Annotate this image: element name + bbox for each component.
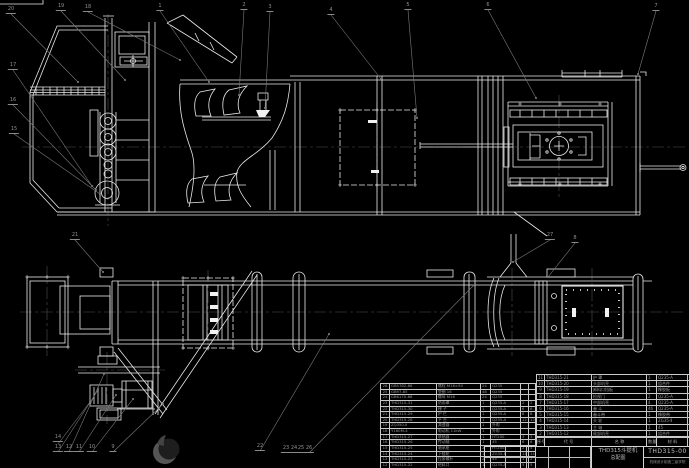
table-row: 19ZQ350-Ⅱ减速器1外购 bbox=[380, 422, 536, 428]
table-cell: 减速器 bbox=[437, 423, 481, 428]
table-cell: 13 bbox=[380, 457, 390, 462]
balloon-label: 15 bbox=[9, 127, 19, 134]
table-cell: 4 bbox=[536, 418, 545, 423]
table-row: 7THD315-17中部机壳4Q235-A1872 bbox=[536, 399, 689, 405]
table-cell: 9 bbox=[536, 387, 545, 392]
table-cell: 1 bbox=[481, 401, 491, 406]
table-cell: 3 bbox=[536, 425, 545, 430]
table-row: 20THD315-28平 台1Q235-A1212 bbox=[380, 417, 536, 423]
table-cell: 垫圈 16 bbox=[437, 390, 481, 395]
table-cell: 8 bbox=[521, 412, 529, 417]
table-cell: 1 bbox=[647, 375, 657, 380]
table-cell: THD315-13 bbox=[545, 425, 592, 430]
cad-viewport: 26GB5782-86螺栓 M16×5024Q23525GB97-85垫圈 16… bbox=[0, 0, 689, 468]
balloon-label: 7 bbox=[652, 4, 659, 11]
take-up-assembly bbox=[420, 125, 603, 167]
bom-table-right: 11THD315-21护 罩1Q235-A4410THD315-20头部机壳1组… bbox=[536, 374, 689, 437]
table-cell: THD315-14 bbox=[545, 418, 592, 423]
table-cell: 19 bbox=[380, 423, 390, 428]
table-cell: 45 bbox=[657, 425, 688, 430]
table-cell: THD315-22 bbox=[390, 463, 437, 468]
head-curve bbox=[180, 80, 300, 212]
table-cell: 8 bbox=[529, 412, 536, 417]
table-cell: 橡胶板 bbox=[657, 387, 688, 392]
balloon-label: 21 bbox=[70, 233, 80, 240]
table-cell: THD315-23 bbox=[390, 457, 437, 462]
balloon-label: 18 bbox=[83, 5, 93, 12]
table-cell: 2 bbox=[521, 401, 529, 406]
table-cell: Q235-A bbox=[657, 406, 688, 411]
table-row: 21THD315-29护 栏1Q235-A88 bbox=[380, 411, 536, 417]
balloon-label: 9 bbox=[109, 445, 116, 452]
table-cell: 12 bbox=[521, 418, 529, 423]
table-cell: 1 bbox=[647, 418, 657, 423]
mid-casing bbox=[57, 70, 646, 215]
table-cell: 48 bbox=[481, 390, 491, 395]
balloon-label: 11 bbox=[74, 445, 84, 452]
table-cell: THD315-12 bbox=[545, 431, 592, 436]
table-cell: 6 bbox=[536, 406, 545, 411]
table-cell: 给料口 bbox=[437, 463, 481, 468]
table-cell: 1 bbox=[481, 429, 491, 434]
balloon-label: 27 bbox=[545, 233, 555, 240]
table-row: 23THD315-31防雨罩1Q235-A22 bbox=[380, 400, 536, 406]
table-cell: 17 bbox=[380, 435, 390, 440]
table-cell: 畚斗带 bbox=[592, 412, 647, 417]
drive-unit bbox=[78, 281, 167, 420]
table-cell: 3 bbox=[529, 435, 536, 440]
table-cell: ZG35-Ⅱ bbox=[657, 418, 688, 423]
balloon-label: 3 bbox=[266, 5, 273, 12]
table-cell: GB6170-86 bbox=[390, 395, 437, 400]
table-cell: Q235 bbox=[491, 384, 521, 389]
table-cell: 5 bbox=[536, 412, 545, 417]
table-cell: HT200 bbox=[491, 435, 521, 440]
table-cell: 45 bbox=[491, 440, 521, 445]
table-cell: 24 bbox=[380, 395, 390, 400]
elevation-view bbox=[30, 15, 686, 236]
table-cell: 中部机壳 bbox=[592, 400, 647, 405]
table-cell: 拉紧螺杆 bbox=[437, 457, 481, 462]
table-cell: 卸料口挡板 bbox=[592, 387, 647, 392]
table-cell: 螺母 M16 bbox=[437, 395, 481, 400]
table-cell: 外购 bbox=[491, 423, 521, 428]
table-cell: 1 bbox=[481, 418, 491, 423]
table-cell: 24 bbox=[481, 395, 491, 400]
centerlines bbox=[20, 14, 688, 424]
table-cell: 12 bbox=[529, 418, 536, 423]
table-row: 26GB5782-86螺栓 M16×5024Q235 bbox=[380, 383, 536, 389]
table-cell: 联轴器 bbox=[437, 435, 481, 440]
drawing-number-cell: THD315-00 机械设计制造二级学院 bbox=[643, 447, 689, 468]
table-cell bbox=[529, 395, 536, 400]
head-drive-box bbox=[115, 32, 149, 67]
table-cell: 电动机 11kW bbox=[437, 429, 481, 434]
table-cell: THD315-18 bbox=[545, 394, 592, 399]
table-cell: 护 罩 bbox=[592, 375, 647, 380]
table-cell: 15 bbox=[380, 446, 390, 451]
balloon-label: 10 bbox=[87, 445, 97, 452]
inspection-door-elevation bbox=[338, 108, 417, 187]
table-cell: 数量 bbox=[647, 438, 657, 446]
table-cell: THD315-21 bbox=[545, 375, 592, 380]
table-cell: Y160M-4 bbox=[390, 429, 437, 434]
table-row: 11THD315-21护 罩1Q235-A44 bbox=[536, 374, 689, 380]
table-cell: 1 bbox=[647, 387, 657, 392]
balloon-label: 19 bbox=[56, 4, 66, 11]
doc-type: 总配图 bbox=[592, 455, 644, 462]
table-cell: 材 料 bbox=[657, 438, 688, 446]
table-cell: 4 bbox=[647, 400, 657, 405]
watermark-blob bbox=[153, 435, 180, 464]
table-row: 17THD315-27联轴器1HT20033 bbox=[380, 434, 536, 440]
table-cell: 6 bbox=[529, 407, 536, 412]
table-cell bbox=[529, 384, 536, 389]
table-cell: 下链轮 bbox=[437, 452, 481, 457]
table-cell: 代 号 bbox=[545, 438, 592, 446]
frame-corner bbox=[0, 0, 43, 4]
table-cell: THD315-26 bbox=[390, 440, 437, 445]
table-cell: 外购 bbox=[491, 429, 521, 434]
balloon-label: 1 bbox=[156, 4, 163, 11]
table-row: 18Y160M-4电动机 11kW1外购 bbox=[380, 428, 536, 434]
table-cell: 检视门 bbox=[592, 394, 647, 399]
table-row: 16THD315-26传动轴14566 bbox=[380, 439, 536, 445]
chain-sprockets bbox=[90, 110, 149, 205]
balloon-label: 6 bbox=[484, 3, 491, 10]
table-cell: 24 bbox=[481, 384, 491, 389]
table-cell: 尾部机壳 bbox=[592, 431, 647, 436]
table-cell bbox=[521, 429, 529, 434]
table-cell: 螺栓 M16×50 bbox=[437, 384, 481, 389]
table-cell: 头 轮 bbox=[592, 418, 647, 423]
table-cell: Q235-A bbox=[657, 394, 688, 399]
table-cell: 6 bbox=[521, 407, 529, 412]
drawing-number: THD315-00 bbox=[644, 447, 689, 457]
table-cell: 2 bbox=[536, 431, 545, 436]
table-cell: 护 栏 bbox=[437, 412, 481, 417]
table-cell: 1 bbox=[481, 435, 491, 440]
table-cell bbox=[521, 395, 529, 400]
table-cell: 10 bbox=[536, 381, 545, 386]
motor bbox=[90, 385, 113, 406]
table-cell: 1 bbox=[647, 425, 657, 430]
balloon-label: 26 bbox=[304, 446, 314, 453]
table-cell: 18 bbox=[380, 429, 390, 434]
table-cell: 46 bbox=[647, 406, 657, 411]
balloon-label: 13 bbox=[53, 445, 63, 452]
table-cell: 6 bbox=[521, 440, 529, 445]
signature-grid bbox=[485, 447, 591, 468]
table-cell: 组合件 bbox=[657, 381, 688, 386]
balloon-label: 8 bbox=[571, 236, 578, 243]
table-row: 9THD315-19卸料口挡板1橡胶板11 bbox=[536, 386, 689, 392]
table-row: 25GB97-85垫圈 1648Q235 bbox=[380, 389, 536, 395]
table-cell: Q235-A bbox=[657, 375, 688, 380]
table-cell: 1 bbox=[481, 423, 491, 428]
bom-right-body: 11THD315-21护 罩1Q235-A4410THD315-20头部机壳1组… bbox=[536, 374, 689, 437]
table-cell: 3 bbox=[521, 435, 529, 440]
table-cell: Q235-A bbox=[657, 400, 688, 405]
table-cell: 12 bbox=[380, 463, 390, 468]
table-cell: THD315-17 bbox=[545, 400, 592, 405]
table-cell: 6 bbox=[529, 440, 536, 445]
table-cell bbox=[529, 429, 536, 434]
table-cell: 2 bbox=[529, 401, 536, 406]
balloon-label: 17 bbox=[8, 63, 18, 70]
table-cell: THD315-30 bbox=[390, 407, 437, 412]
table-cell: GB5782-86 bbox=[390, 384, 437, 389]
table-cell: 1 bbox=[481, 412, 491, 417]
table-cell: 1 bbox=[481, 407, 491, 412]
table-cell: THD315-27 bbox=[390, 435, 437, 440]
balloon-label: 2 bbox=[240, 3, 247, 10]
table-cell: 23 bbox=[380, 401, 390, 406]
table-cell: 14 bbox=[380, 452, 390, 457]
table-cell: 防雨罩 bbox=[437, 401, 481, 406]
table-cell: 8 bbox=[536, 394, 545, 399]
table-cell: Q235-A bbox=[491, 407, 521, 412]
table-cell: 主 轴 bbox=[592, 425, 647, 430]
table-cell bbox=[529, 423, 536, 428]
organization: 机械设计制造二级学院 bbox=[644, 457, 689, 465]
table-cell: 20 bbox=[380, 418, 390, 423]
table-cell: 序号 bbox=[536, 438, 545, 446]
table-cell: Q235 bbox=[491, 395, 521, 400]
table-cell: THD315-16 bbox=[545, 406, 592, 411]
table-cell: THD315-28 bbox=[390, 418, 437, 423]
table-cell: 1 bbox=[647, 412, 657, 417]
table-cell: Q235-A bbox=[491, 418, 521, 423]
table-cell: THD315-15 bbox=[545, 412, 592, 417]
table-cell: 26 bbox=[380, 384, 390, 389]
table-row: 8THD315-18检视门2Q235-A36 bbox=[536, 393, 689, 399]
table-cell: THD315-31 bbox=[390, 401, 437, 406]
balloon-label: 12 bbox=[64, 445, 74, 452]
table-cell bbox=[521, 423, 529, 428]
product-name: THD315斗提机 bbox=[592, 447, 644, 455]
balloon-label: 14 bbox=[53, 435, 63, 442]
table-cell: 梯 子 bbox=[437, 407, 481, 412]
table-cell: GB97-85 bbox=[390, 390, 437, 395]
table-cell: 2 bbox=[647, 394, 657, 399]
table-row: 4THD315-14头 轮1ZG35-Ⅱ2626 bbox=[536, 417, 689, 423]
table-cell: 22 bbox=[380, 407, 390, 412]
balloon-label: 22 bbox=[255, 444, 265, 451]
table-cell: 传动轴 bbox=[437, 440, 481, 445]
drawing-title-cell: THD315斗提机 总配图 bbox=[591, 447, 644, 468]
table-row: 10THD315-20头部机壳1组合件 bbox=[536, 380, 689, 386]
table-cell: 1 bbox=[481, 440, 491, 445]
table-row: 24GB6170-86螺母 M1624Q235 bbox=[380, 394, 536, 400]
table-cell bbox=[529, 390, 536, 395]
balloon-label: 16 bbox=[8, 98, 18, 105]
balloon-label: 5 bbox=[404, 3, 411, 10]
table-cell bbox=[521, 384, 529, 389]
table-row: 2THD315-12尾部机壳1组合件 bbox=[536, 430, 689, 437]
table-cell: THD315-29 bbox=[390, 412, 437, 417]
table-cell bbox=[521, 390, 529, 395]
table-row: 3THD315-13主 轴1451515 bbox=[536, 424, 689, 430]
take-up-screw-handle bbox=[640, 163, 686, 172]
table-cell: 轴承座 bbox=[437, 446, 481, 451]
table-cell: 组合件 bbox=[657, 431, 688, 436]
table-cell: 7 bbox=[536, 400, 545, 405]
table-cell: Q235-A bbox=[491, 401, 521, 406]
table-row: 5THD315-15畚斗带1橡胶带1212 bbox=[536, 411, 689, 417]
boot-plan bbox=[427, 234, 652, 355]
table-cell: 平 台 bbox=[437, 418, 481, 423]
table-cell: 头部机壳 bbox=[592, 381, 647, 386]
table-cell: 25 bbox=[380, 390, 390, 395]
balloon-label: 20 bbox=[6, 7, 16, 14]
table-cell: THD315-19 bbox=[545, 387, 592, 392]
table-cell: THD315-25 bbox=[390, 446, 437, 451]
table-cell: 11 bbox=[536, 375, 545, 380]
table-cell: Q235 bbox=[491, 390, 521, 395]
table-cell: THD315-24 bbox=[390, 452, 437, 457]
table-cell: 名 称 bbox=[592, 438, 647, 446]
table-cell: 16 bbox=[380, 440, 390, 445]
table-row: 22THD315-30梯 子1Q235-A66 bbox=[380, 406, 536, 412]
table-row: 6THD315-16畚 斗46Q235-A0.418 bbox=[536, 405, 689, 411]
table-cell: ZQ350-Ⅱ bbox=[390, 423, 437, 428]
table-cell: 畚 斗 bbox=[592, 406, 647, 411]
table-cell: 21 bbox=[380, 412, 390, 417]
title-block: THD315斗提机 总配图 THD315-00 机械设计制造二级学院 bbox=[484, 446, 689, 468]
bucket-bolt-detail bbox=[256, 93, 270, 117]
table-cell: 橡胶带 bbox=[657, 412, 688, 417]
table-cell: 1 bbox=[647, 431, 657, 436]
table-cell: Q235-A bbox=[491, 412, 521, 417]
discharge-chute bbox=[167, 15, 237, 63]
balloon-label: 4 bbox=[327, 8, 334, 15]
table-cell: 1 bbox=[647, 381, 657, 386]
table-cell: THD315-20 bbox=[545, 381, 592, 386]
